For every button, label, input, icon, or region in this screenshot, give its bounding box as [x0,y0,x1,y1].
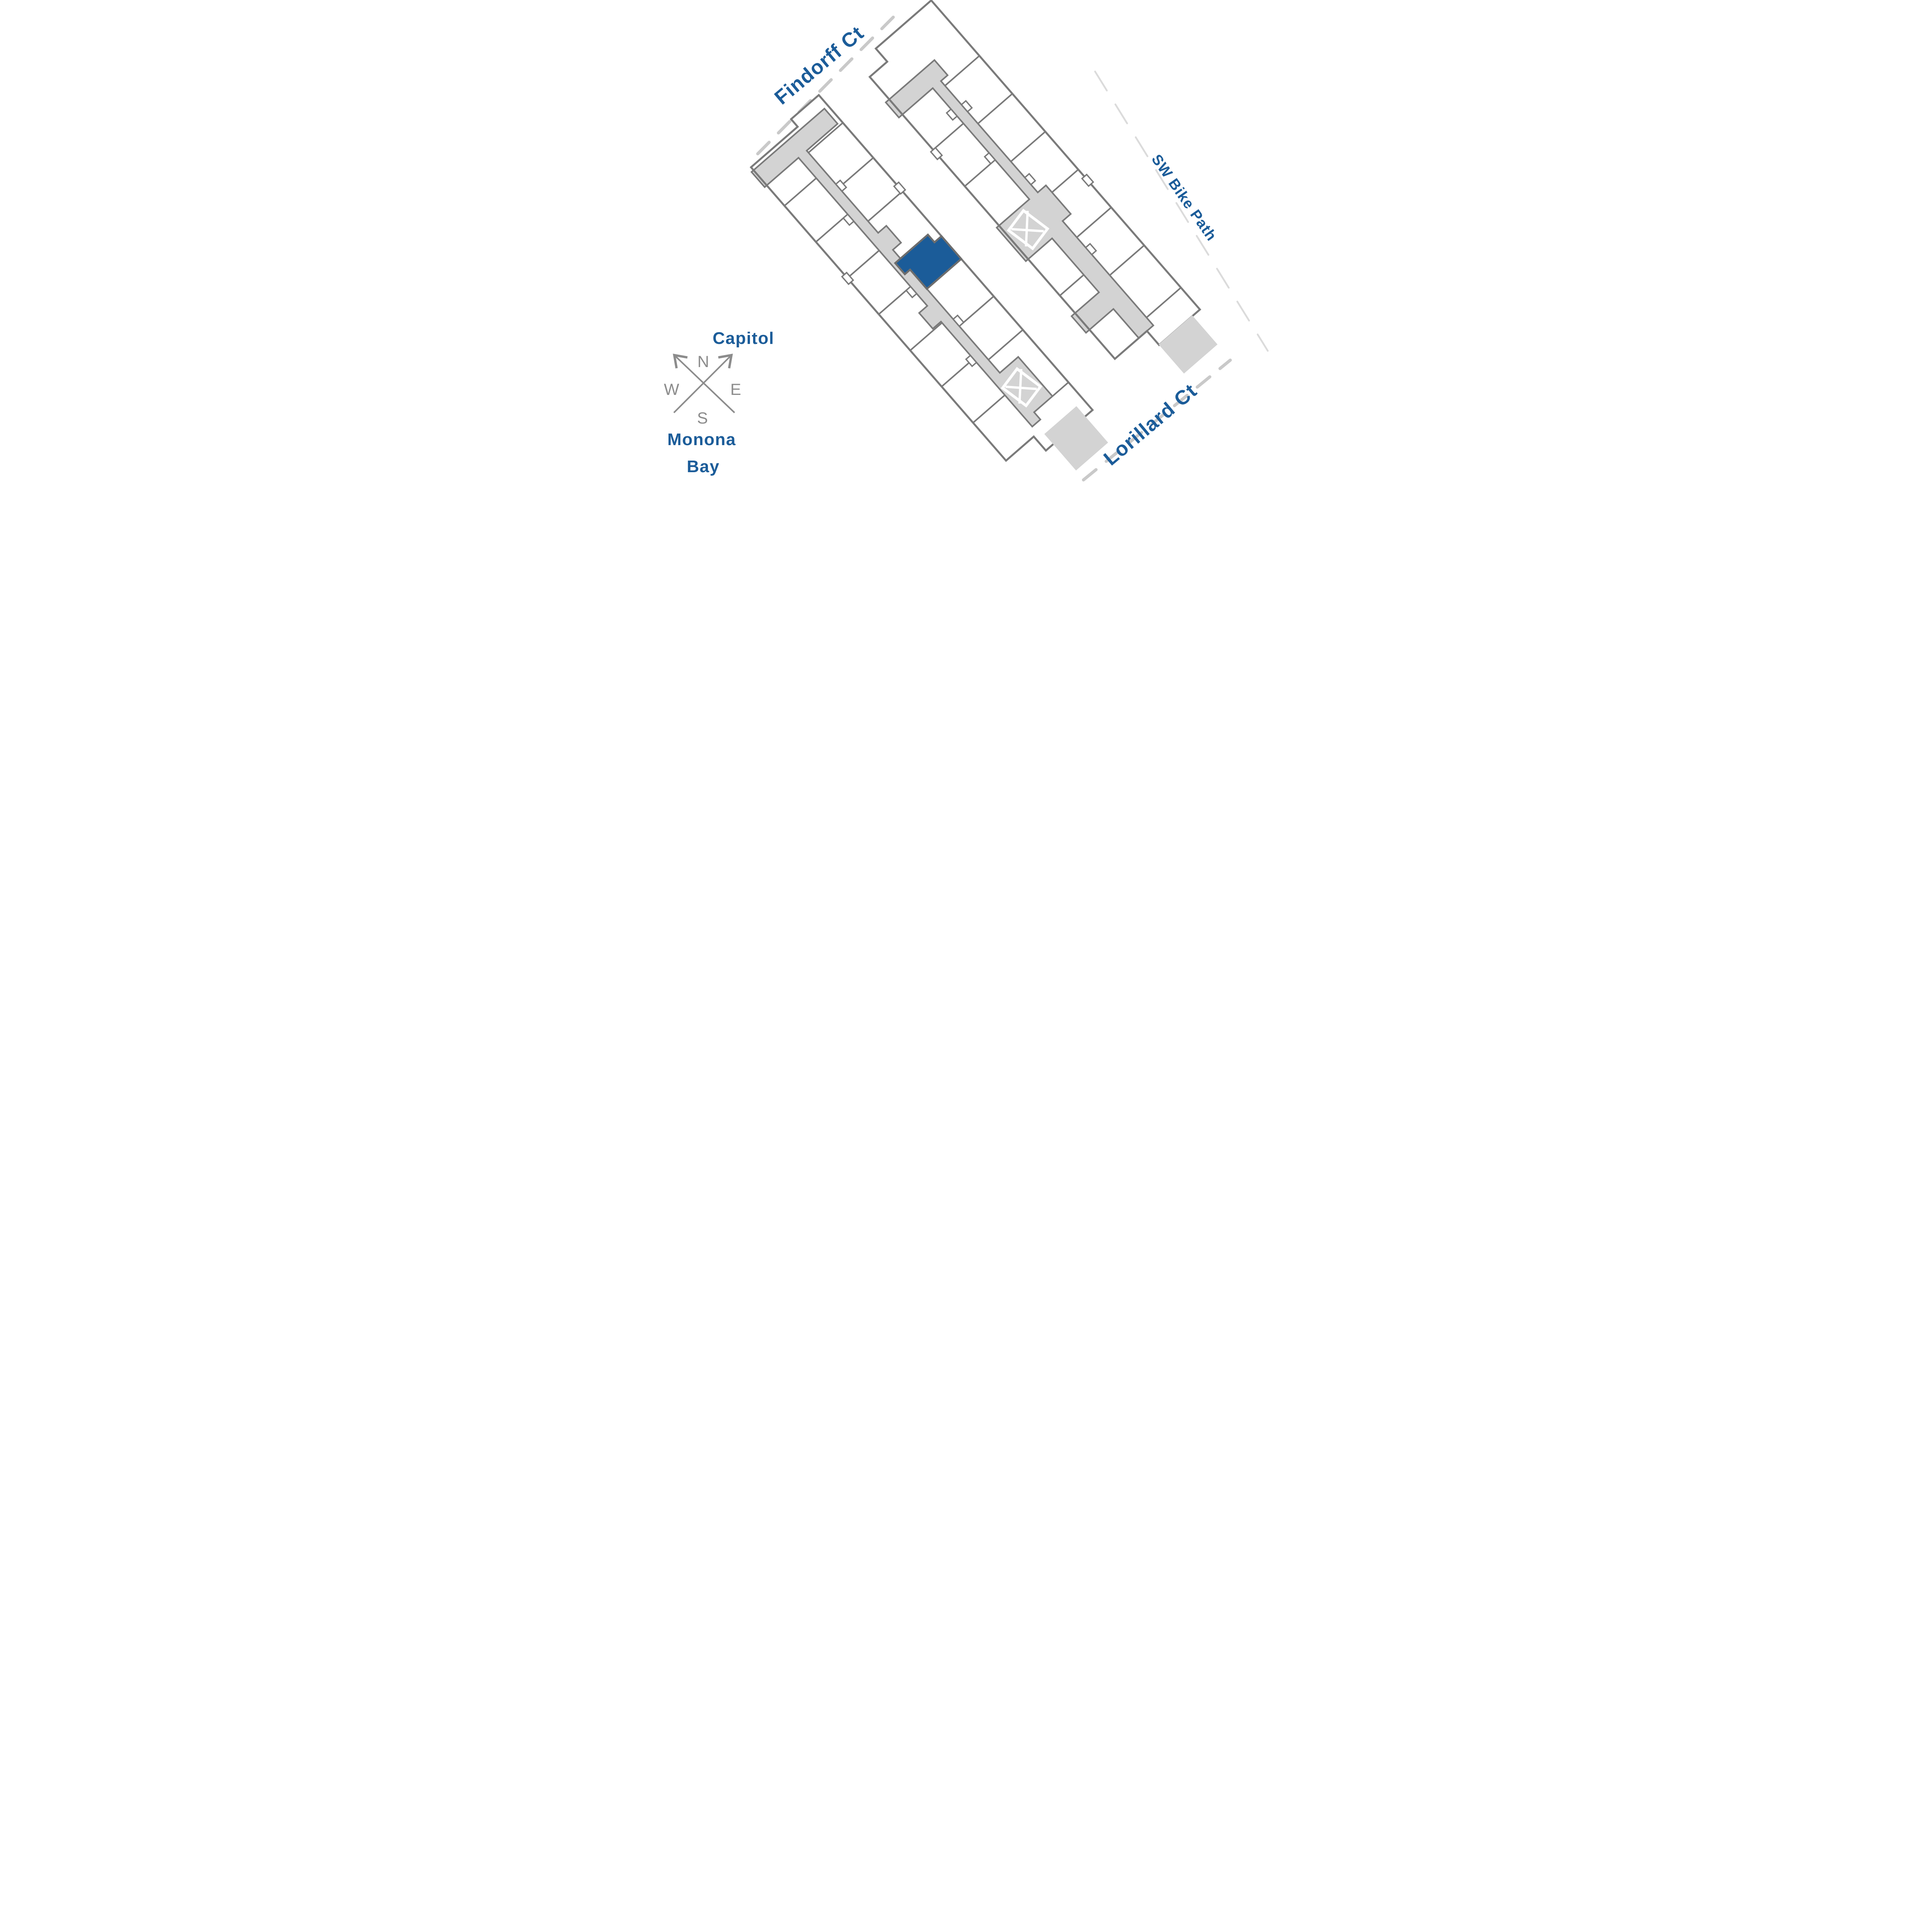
lorillard-ct-label: Lorillard Ct [1100,379,1202,470]
sw-bike-path-label: SW Bike Path [1148,151,1219,244]
site-plan-page: Findorff Ct SW Bike Path Lorillard Ct Ca… [663,0,1269,482]
compass-rose: N W E S [664,352,741,427]
compass-west-letter: W [664,380,679,398]
compass-south-letter: S [697,409,708,427]
site-plan-map: Findorff Ct SW Bike Path Lorillard Ct Ca… [663,0,1269,482]
monona-bay-label-line2: Bay [687,457,719,476]
compass-east-letter: E [730,380,741,398]
compass-north-letter: N [697,352,709,371]
capitol-label: Capitol [713,329,774,348]
monona-bay-label-line1: Monona [667,430,736,449]
